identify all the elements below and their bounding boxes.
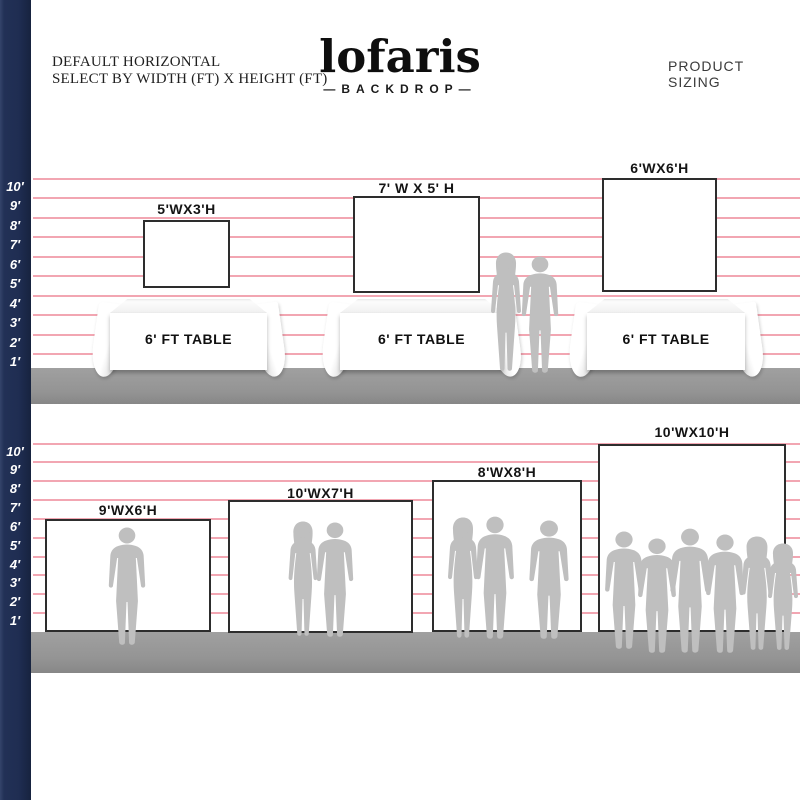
ruler-tick-label: 10′ bbox=[0, 179, 30, 195]
backdrop-size-label: 8'WX8'H bbox=[402, 464, 612, 480]
ruler-tick-label: 3′ bbox=[0, 575, 30, 591]
table: 6' FT TABLE bbox=[587, 313, 745, 370]
ruler-tick-label: 9′ bbox=[0, 462, 30, 478]
grid-line bbox=[33, 295, 800, 297]
man-silhouette bbox=[514, 255, 566, 374]
ruler-tick-label: 3′ bbox=[0, 315, 30, 331]
man-silhouette bbox=[101, 526, 153, 646]
table-label: 6' FT TABLE bbox=[145, 331, 232, 347]
ruler-tick-label: 1′ bbox=[0, 613, 30, 629]
ruler-tick-label: 7′ bbox=[0, 237, 30, 253]
table-label: 6' FT TABLE bbox=[622, 331, 709, 347]
woman-silhouette bbox=[758, 543, 800, 652]
table: 6' FT TABLE bbox=[110, 313, 267, 370]
ruler-tick-label: 5′ bbox=[0, 276, 30, 292]
ruler-tick-label: 8′ bbox=[0, 481, 30, 497]
ruler-tick-label: 4′ bbox=[0, 557, 30, 573]
ruler-tick-label: 8′ bbox=[0, 218, 30, 234]
backdrop-size-label: 10'WX10'H bbox=[568, 424, 800, 440]
table-top bbox=[587, 299, 745, 313]
ruler-bar bbox=[0, 0, 31, 800]
ruler-tick-label: 6′ bbox=[0, 257, 30, 273]
backdrop-panel bbox=[143, 220, 230, 288]
page-title: PRODUCT SIZING bbox=[668, 58, 800, 90]
table-top bbox=[110, 299, 267, 313]
backdrop-size-label: 5'WX3'H bbox=[113, 201, 260, 217]
table-label: 6' FT TABLE bbox=[378, 331, 465, 347]
backdrop-size-label: 10'WX7'H bbox=[198, 485, 443, 501]
backdrop-size-label: 7' W X 5' H bbox=[323, 180, 510, 196]
ruler-tick-label: 7′ bbox=[0, 500, 30, 516]
backdrop-panel bbox=[602, 178, 717, 292]
ruler-tick-label: 2′ bbox=[0, 335, 30, 351]
man-silhouette bbox=[521, 519, 577, 640]
product-sizing-chart: DEFAULT HORIZONTAL SELECT BY WIDTH (FT) … bbox=[0, 0, 800, 800]
floor bbox=[31, 368, 800, 404]
ruler-tick-label: 6′ bbox=[0, 519, 30, 535]
backdrop-panel bbox=[353, 196, 480, 293]
table: 6' FT TABLE bbox=[340, 313, 503, 370]
table-top bbox=[340, 299, 503, 313]
backdrop-size-label: 9'WX6'H bbox=[15, 502, 241, 518]
man-silhouette bbox=[309, 521, 361, 638]
backdrop-size-label: 6'WX6'H bbox=[572, 160, 747, 176]
ruler-tick-label: 2′ bbox=[0, 594, 30, 610]
ruler-tick-label: 5′ bbox=[0, 538, 30, 554]
ruler-tick-label: 4′ bbox=[0, 296, 30, 312]
ruler-tick-label: 9′ bbox=[0, 198, 30, 214]
ruler-tick-label: 10′ bbox=[0, 444, 30, 460]
man-silhouette bbox=[468, 515, 522, 640]
ruler-tick-label: 1′ bbox=[0, 354, 30, 370]
